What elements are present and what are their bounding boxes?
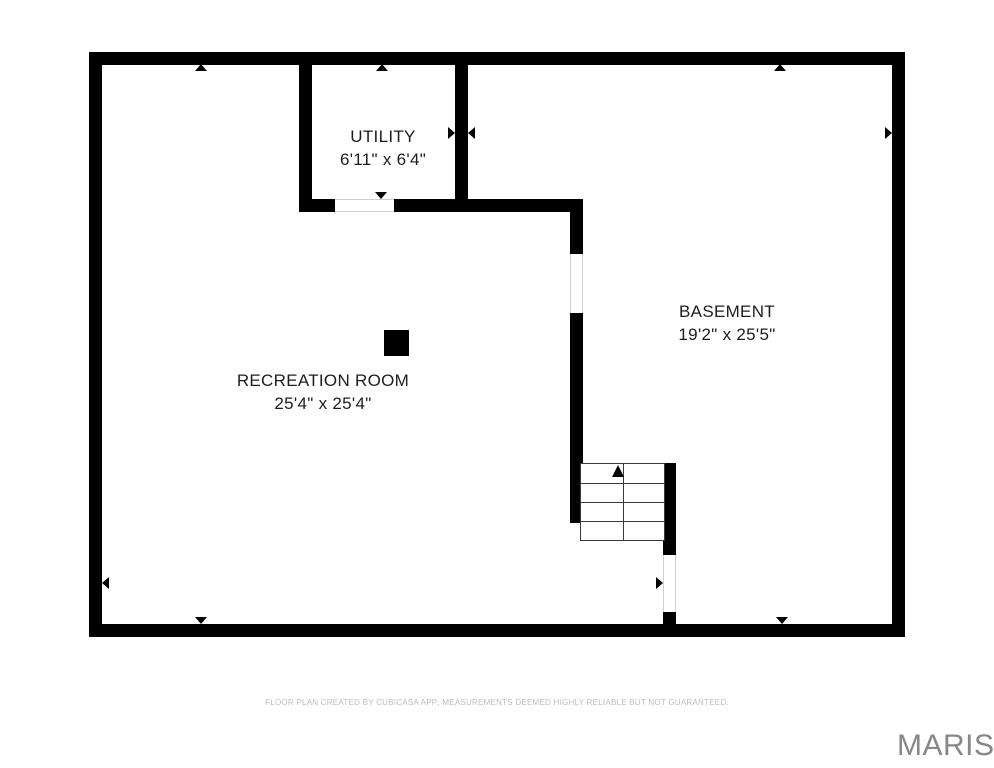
window-marker-icon — [774, 64, 786, 71]
room-name: RECREATION ROOM — [237, 369, 409, 392]
staircase — [580, 463, 665, 541]
divider-wall-upper — [570, 212, 583, 254]
room-name: BASEMENT — [678, 300, 775, 323]
room-dimensions: 25'4" x 25'4" — [237, 392, 409, 415]
maris-watermark: MARIS — [897, 729, 994, 763]
stair-wall-stub — [663, 612, 676, 624]
window-marker-icon — [776, 617, 788, 624]
floor-plan-canvas: UTILITY 6'11" x 6'4" BASEMENT 19'2" x 25… — [0, 0, 994, 768]
outer-wall-bottom — [89, 624, 905, 637]
utility-wall-bottom-left-segment — [299, 199, 335, 212]
door-marker-icon — [656, 577, 663, 589]
basement-room-label: BASEMENT 19'2" x 25'5" — [678, 300, 775, 346]
window-marker-icon — [305, 127, 312, 139]
room-name: UTILITY — [340, 125, 426, 148]
stairs-up-arrow-icon — [612, 465, 624, 477]
window-marker-icon — [885, 127, 892, 139]
window-marker-icon — [376, 64, 388, 71]
support-column — [384, 330, 409, 356]
utility-wall-right — [455, 64, 468, 212]
outer-wall-right — [892, 52, 905, 637]
recreation-room-label: RECREATION ROOM 25'4" x 25'4" — [237, 369, 409, 415]
utility-room-label: UTILITY 6'11" x 6'4" — [340, 125, 426, 171]
window-marker-icon — [102, 577, 109, 589]
window-marker-icon — [195, 64, 207, 71]
room-dimensions: 19'2" x 25'5" — [678, 323, 775, 346]
outer-wall-left — [89, 52, 102, 637]
divider-door-opening — [570, 254, 583, 313]
utility-door-opening — [335, 199, 394, 212]
disclaimer-text: FLOOR PLAN CREATED BY CUBICASA APP; MEAS… — [0, 698, 994, 707]
room-dimensions: 6'11" x 6'4" — [340, 148, 426, 171]
window-marker-icon — [195, 617, 207, 624]
door-marker-icon — [375, 192, 387, 199]
utility-wall-bottom-right-segment — [394, 199, 583, 212]
window-marker-icon — [468, 127, 475, 139]
window-marker-icon — [448, 127, 455, 139]
stair-door-opening — [663, 555, 676, 612]
